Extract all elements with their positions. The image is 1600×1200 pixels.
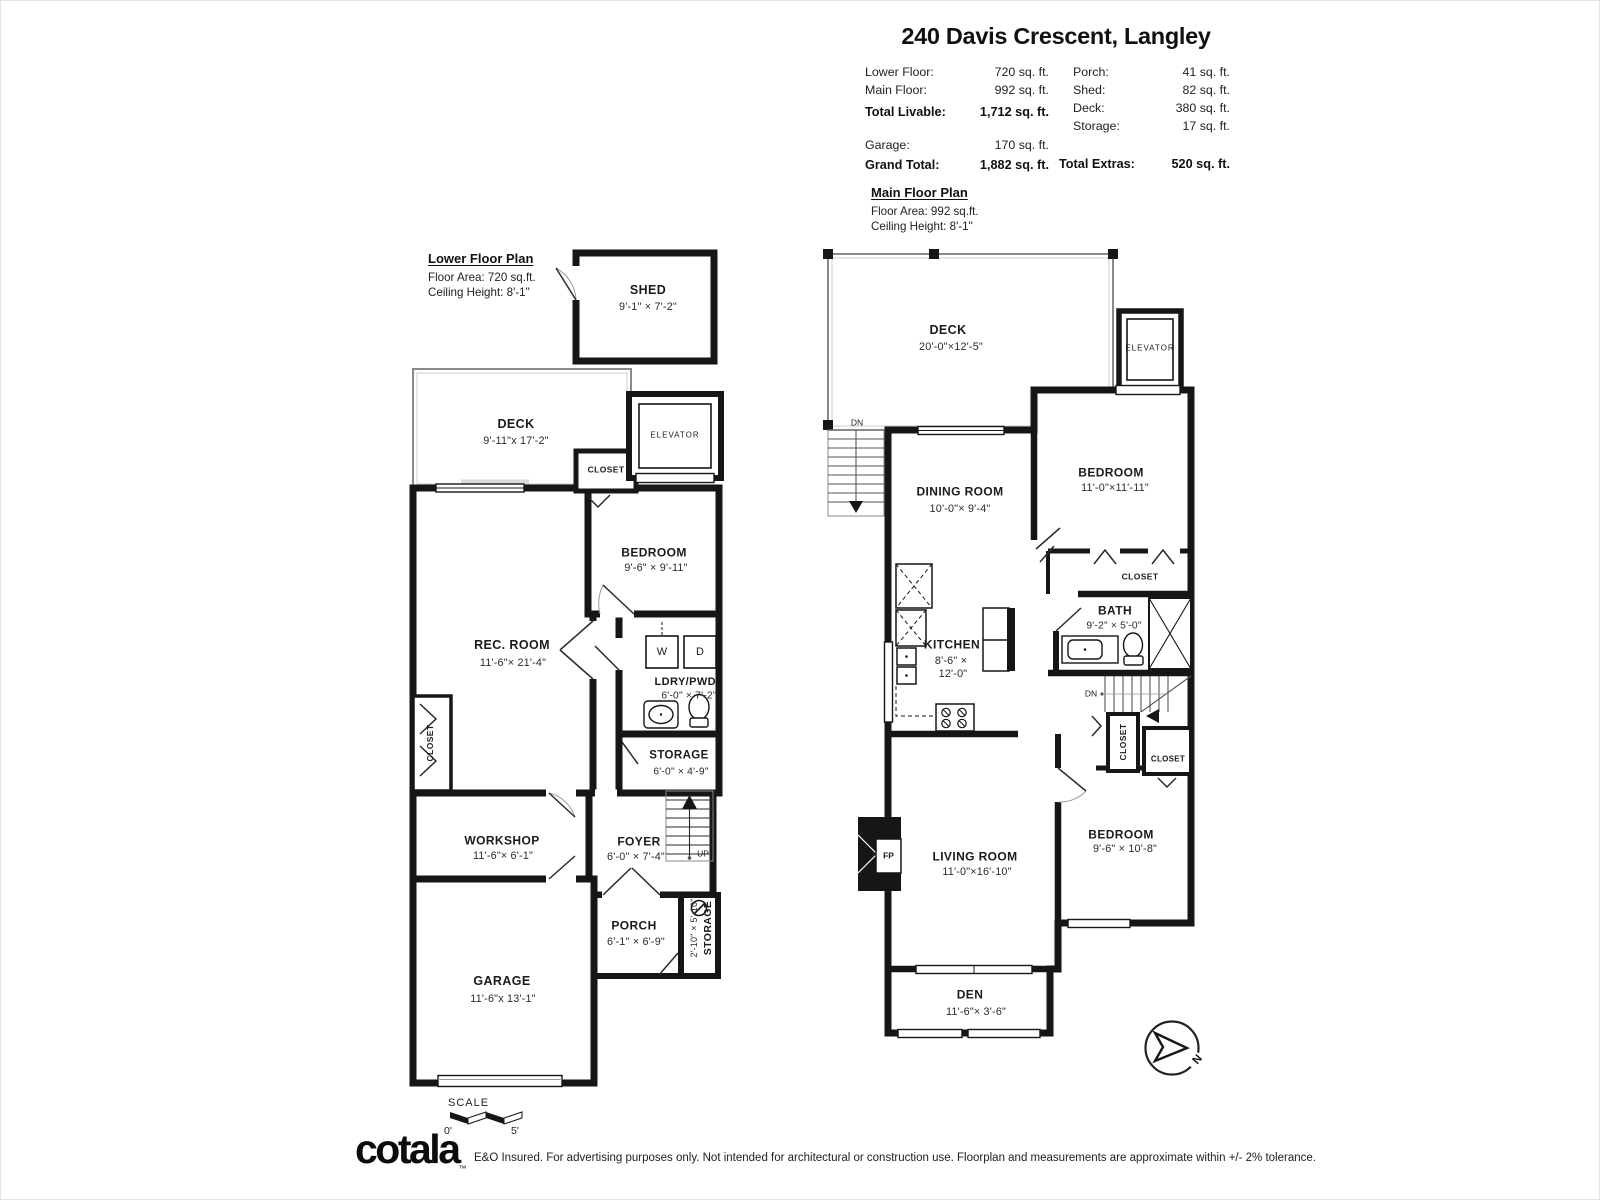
room-dims-kitchen-1: 8'-6" × [935, 656, 967, 668]
stat-main-floor: Main Floor: 992 sq. ft. [865, 83, 1049, 97]
room-dims-dining: 10'-0"× 9'-4" [930, 504, 991, 516]
stat-value: 41 sq. ft. [1182, 65, 1230, 79]
room-label-shed: SHED [630, 284, 666, 298]
stat-storage: Storage: 17 sq. ft. [1073, 119, 1230, 133]
main-plan-drawing [796, 246, 1206, 1091]
washer-label: W [657, 646, 667, 658]
room-label-kitchen: KITCHEN [924, 638, 980, 651]
room-label-storage: STORAGE [649, 750, 708, 763]
stat-porch: Porch: 41 sq. ft. [1073, 65, 1230, 79]
room-label-garage: GARAGE [473, 975, 530, 989]
main-plan-floor-area: Floor Area: 992 sq.ft. [871, 204, 979, 219]
page-title: 240 Davis Crescent, Langley [879, 23, 1233, 50]
stat-value: 520 sq. ft. [1171, 157, 1230, 171]
room-label-workshop: WORKSHOP [464, 834, 539, 847]
dryer-label: D [696, 646, 704, 658]
stat-value: 1,882 sq. ft. [980, 158, 1049, 172]
stat-label: Total Livable: [865, 105, 946, 119]
room-label-bedroom: BEDROOM [621, 546, 686, 559]
room-dims-living: 11'-0"×16'-10" [942, 867, 1011, 879]
room-label-closet-top: CLOSET [588, 465, 625, 474]
room-label-bedroom2: BEDROOM [1088, 828, 1153, 841]
room-dims-deck-main: 20'-0"×12'-5" [919, 342, 983, 354]
stairs-up-label: UP [697, 849, 709, 858]
fireplace-icon [858, 817, 901, 891]
room-dims-bedroom: 9'-6" × 9'-11" [624, 563, 687, 575]
room-label-elevator: ELEVATOR [650, 432, 699, 441]
lower-room-walls [413, 488, 719, 1083]
stairs-down-label-mid: DN [1085, 689, 1097, 698]
room-label-laundry: LDRY/PWD. [655, 676, 720, 688]
room-dims-bedroom1: 11'-0"×11'-11" [1081, 483, 1149, 495]
room-dims-shed: 9'-1" × 7'-2" [619, 302, 677, 314]
room-label-porch: PORCH [611, 919, 656, 932]
room-dims-rec-room: 11'-6"× 21'-4" [480, 658, 546, 670]
room-dims-laundry: 6'-0" × 7'-2" [661, 690, 716, 701]
stat-label: Total Extras: [1059, 157, 1135, 171]
lower-floor-plan: SHED 9'-1" × 7'-2" DECK 9'-11"x 17'-2" E… [406, 246, 736, 1126]
stat-lower-floor: Lower Floor: 720 sq. ft. [865, 65, 1049, 79]
scale-end: 5' [511, 1125, 519, 1137]
trademark-mark: ™ [459, 1164, 467, 1173]
room-dims-foyer: 6'-0" × 7'-4" [607, 852, 665, 864]
fireplace-label: FP [883, 851, 894, 860]
stat-value: 992 sq. ft. [995, 83, 1049, 97]
room-dims-storage: 6'-0" × 4'-9" [653, 766, 708, 777]
room-label-foyer: FOYER [617, 835, 660, 848]
room-dims-workshop: 11'-6"× 6'-1" [473, 851, 533, 863]
garage-door-icon [438, 1076, 562, 1087]
stat-grand-total: Grand Total: 1,882 sq. ft. [865, 158, 1049, 172]
stat-value: 1,712 sq. ft. [980, 105, 1049, 119]
stat-value: 720 sq. ft. [995, 65, 1049, 79]
stat-value: 170 sq. ft. [995, 138, 1049, 152]
room-label-storage-side: STORAGE [702, 901, 714, 956]
footer-disclaimer: E&O Insured. For advertising purposes on… [474, 1152, 1316, 1164]
main-plan-ceiling-height: Ceiling Height: 8'-1" [871, 219, 979, 234]
room-dims-deck: 9'-11"x 17'-2" [483, 436, 548, 448]
room-dims-garage: 11'-6"x 13'-1" [470, 994, 535, 1006]
stairs-down-deck-icon [828, 430, 884, 516]
stat-value: 380 sq. ft. [1176, 101, 1230, 115]
stairs-down-label-top: DN [851, 418, 863, 427]
stat-label: Storage: [1073, 119, 1120, 133]
room-label-dining: DINING ROOM [916, 485, 1003, 498]
main-closet-small-walls [1144, 728, 1191, 774]
room-label-living: LIVING ROOM [932, 850, 1017, 863]
stat-label: Lower Floor: [865, 65, 934, 79]
room-dims-bedroom2: 9'-6" × 10'-8" [1093, 844, 1157, 856]
stat-label: Shed: [1073, 83, 1105, 97]
stat-label: Grand Total: [865, 158, 939, 172]
floorplan-page: 240 Davis Crescent, Langley Lower Floor:… [0, 0, 1600, 1200]
stat-garage: Garage: 170 sq. ft. [865, 138, 1049, 152]
room-label-elevator-main: ELEVATOR [1125, 345, 1174, 354]
room-label-closet-mid: CLOSET [1118, 724, 1128, 761]
stat-total-extras: Total Extras: 520 sq. ft. [1059, 157, 1230, 171]
room-label-den: DEN [957, 988, 984, 1001]
main-floor-plan: DECK 20'-0"×12'-5" DN ELEVATOR DINING RO… [796, 246, 1206, 1091]
stat-value: 17 sq. ft. [1182, 119, 1230, 133]
main-plan-heading: Main Floor Plan Floor Area: 992 sq.ft. C… [871, 185, 979, 234]
room-dims-bath: 9'-2" × 5'-0" [1086, 620, 1141, 631]
room-dims-porch: 6'-1" × 6'-9" [607, 937, 665, 949]
stat-value: 82 sq. ft. [1182, 83, 1230, 97]
room-dims-kitchen-2: 12'-0" [939, 669, 968, 681]
stat-label: Main Floor: [865, 83, 927, 97]
brand-text: cotala [355, 1126, 459, 1172]
stat-label: Porch: [1073, 65, 1109, 79]
north-arrow-icon [1138, 1014, 1208, 1084]
stat-label: Garage: [865, 138, 910, 152]
stat-shed: Shed: 82 sq. ft. [1073, 83, 1230, 97]
room-label-deck-main: DECK [929, 324, 966, 338]
stat-label: Deck: [1073, 101, 1105, 115]
main-plan-title: Main Floor Plan [871, 185, 979, 202]
room-label-closet-left: CLOSET [425, 725, 435, 762]
room-label-bath: BATH [1098, 604, 1132, 617]
room-dims-den: 11'-6"× 3'-6" [946, 1007, 1006, 1019]
stat-total-livable: Total Livable: 1,712 sq. ft. [865, 105, 1049, 119]
brand-logo: cotala™ [355, 1129, 467, 1173]
room-label-closet1: CLOSET [1122, 572, 1159, 581]
scale-label: SCALE [448, 1097, 489, 1109]
stat-deck: Deck: 380 sq. ft. [1073, 101, 1230, 115]
room-label-bedroom1: BEDROOM [1078, 466, 1143, 479]
room-label-closet-small: CLOSET [1151, 756, 1185, 765]
room-dims-storage-side: 2'-10" × 5'-10" [689, 898, 699, 957]
room-label-deck: DECK [497, 418, 534, 432]
room-label-rec-room: REC. ROOM [474, 639, 550, 653]
